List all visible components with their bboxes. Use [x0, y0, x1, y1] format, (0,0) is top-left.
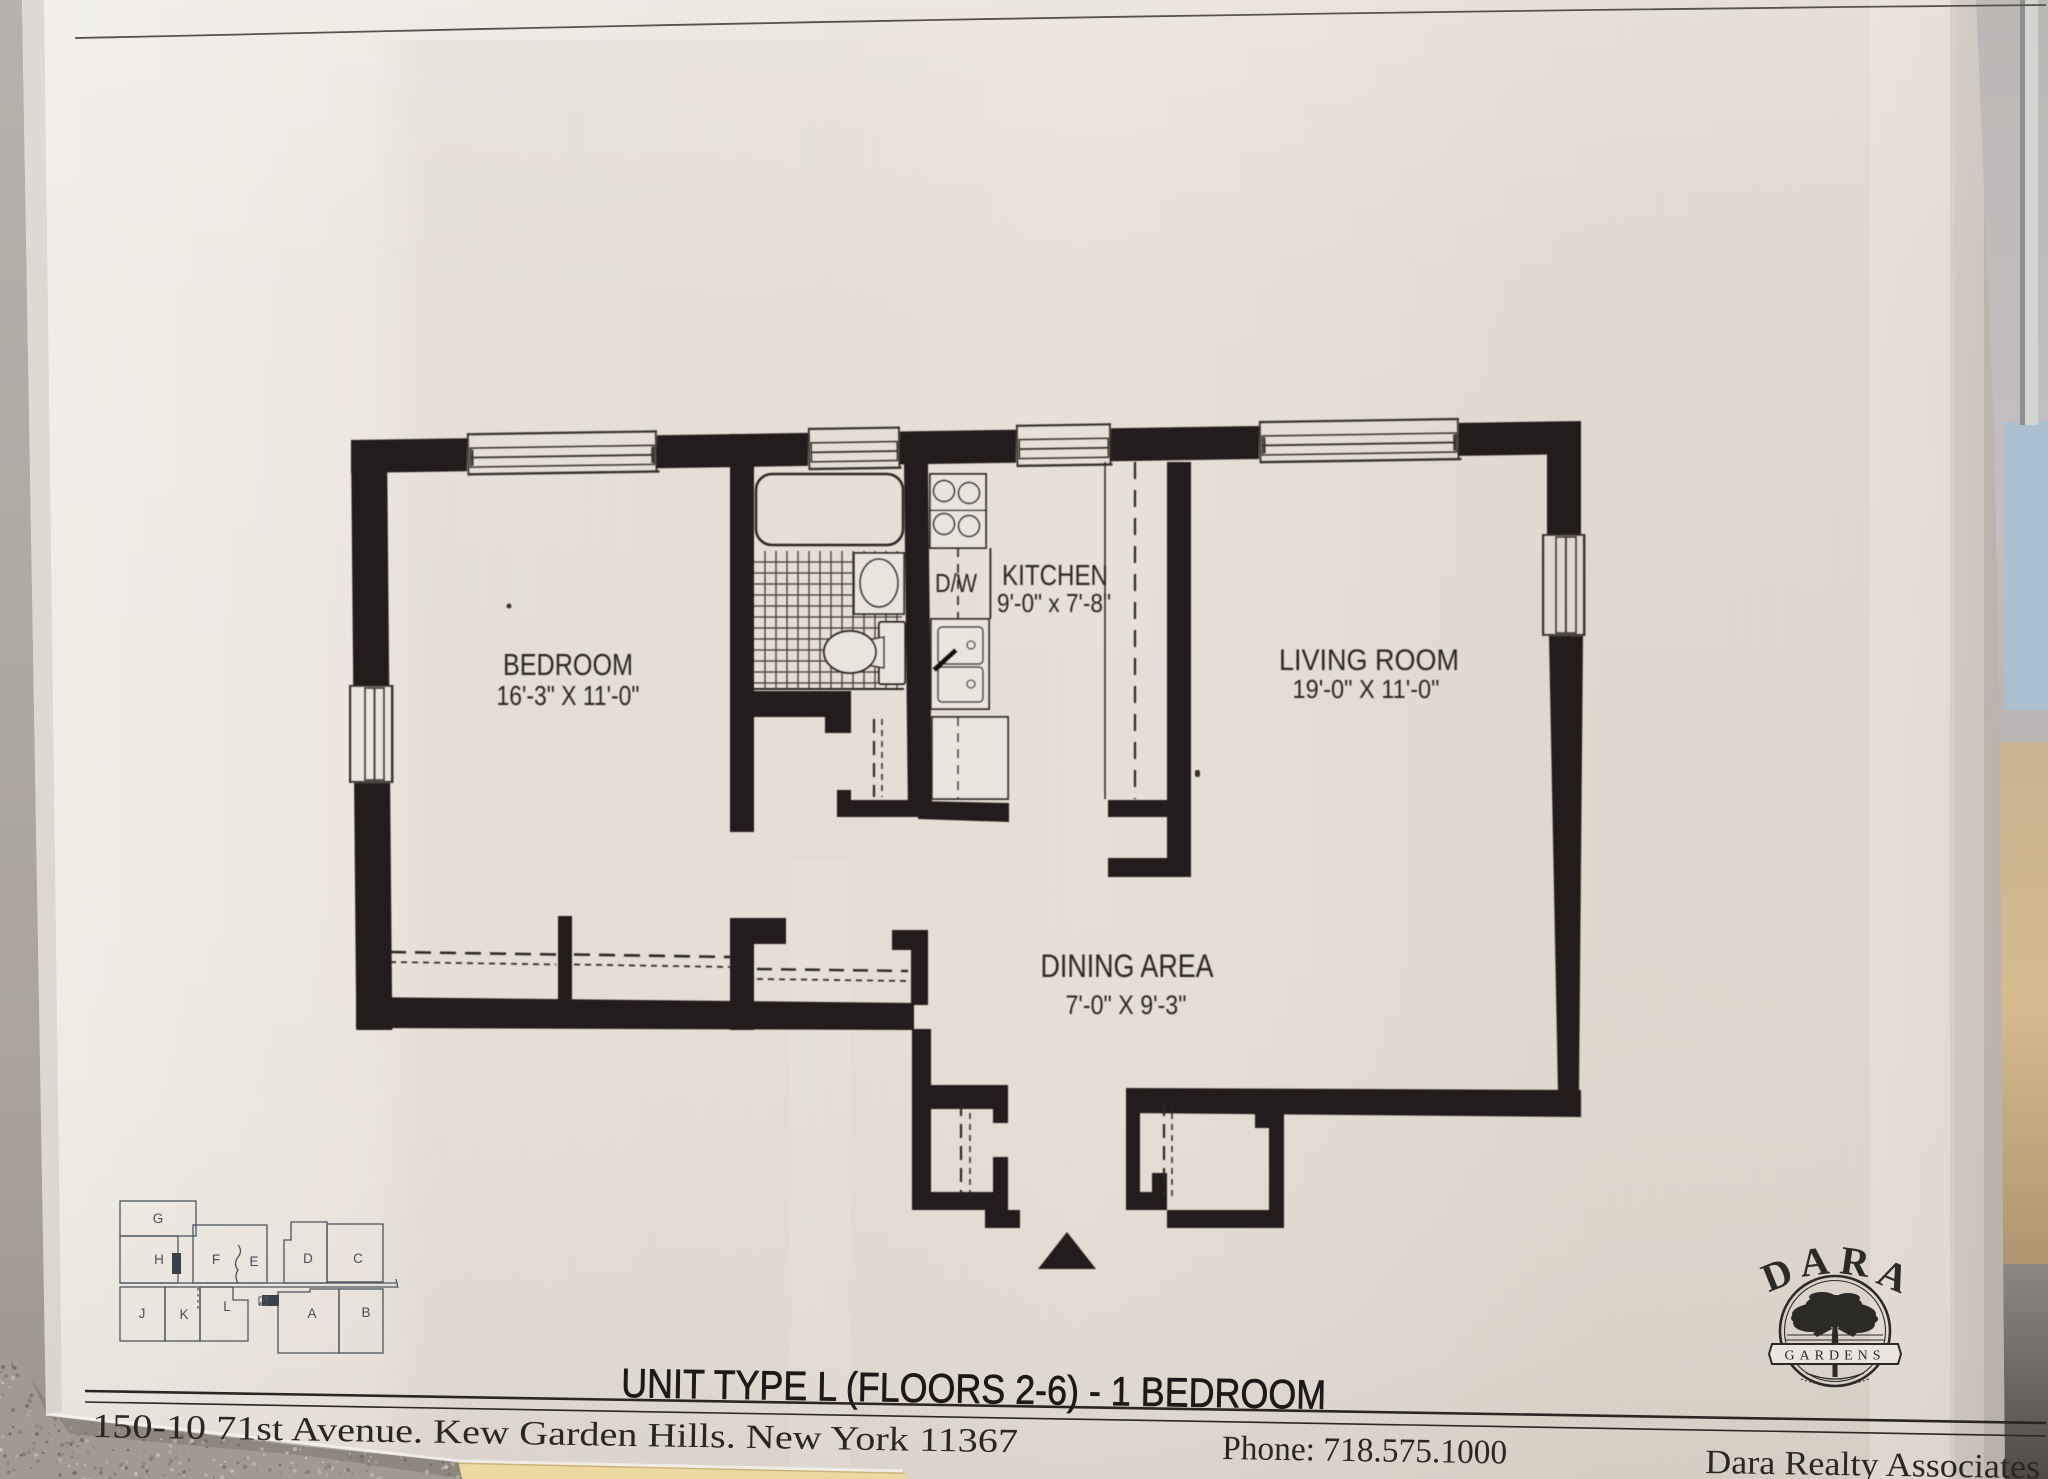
svg-text:G: G: [153, 1211, 164, 1226]
svg-text:A: A: [307, 1306, 316, 1321]
svg-text:K: K: [179, 1307, 188, 1322]
svg-text:19'-0" X 11'-0": 19'-0" X 11'-0": [1293, 674, 1440, 704]
svg-text:J: J: [139, 1306, 146, 1321]
svg-text:H: H: [154, 1252, 164, 1267]
svg-text:Phone: 718.575.1000: Phone: 718.575.1000: [1222, 1430, 1508, 1471]
svg-text:Dara Realty Associates: Dara Realty Associates: [1705, 1444, 2041, 1479]
svg-text:F: F: [212, 1252, 220, 1267]
svg-text:16'-3" X 11'-0": 16'-3" X 11'-0": [497, 680, 640, 711]
svg-text:LIVING ROOM: LIVING ROOM: [1279, 644, 1459, 677]
svg-text:DINING AREA: DINING AREA: [1041, 948, 1215, 984]
svg-text:GARDENS: GARDENS: [1784, 1349, 1885, 1364]
svg-text:E: E: [249, 1254, 258, 1269]
svg-text:L: L: [223, 1299, 231, 1314]
svg-text:D/W: D/W: [935, 568, 977, 598]
svg-text:D: D: [303, 1251, 313, 1266]
svg-text:7'-0" X 9'-3": 7'-0" X 9'-3": [1066, 990, 1187, 1020]
svg-text:A: A: [1797, 1237, 1831, 1285]
svg-text:BEDROOM: BEDROOM: [503, 647, 633, 682]
svg-text:C: C: [353, 1251, 363, 1266]
svg-text:9'-0" x 7'-8": 9'-0" x 7'-8": [997, 588, 1111, 618]
svg-text:B: B: [361, 1305, 370, 1320]
